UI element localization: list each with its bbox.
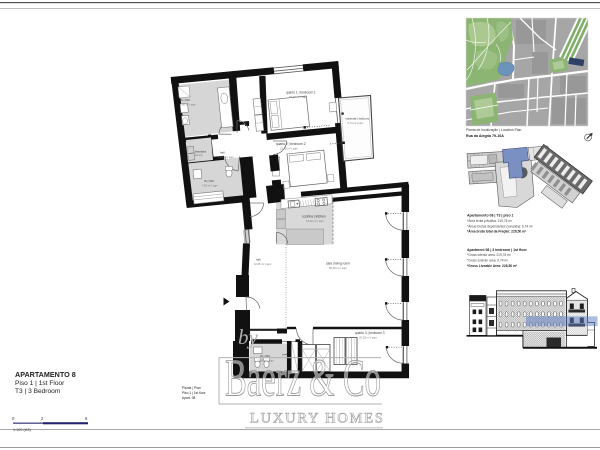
svg-text:Planta | Plan: Planta | Plan [182, 386, 201, 390]
svg-text:*Área bruta privativa: 219,76: *Área bruta privativa: 219,76 m² [467, 219, 512, 223]
svg-text:Apart. 08: Apart. 08 [182, 396, 196, 400]
svg-text:10,35 m² | sqm: 10,35 m² | sqm [254, 262, 271, 266]
svg-text:4,87 m² | sqm: 4,87 m² | sqm [218, 155, 234, 159]
svg-text:varanda | balcony: varanda | balcony [346, 117, 370, 121]
svg-text:Piso 1 | 1st Floor: Piso 1 | 1st Floor [15, 380, 65, 387]
svg-text:6,74 m² | sqm: 6,74 m² | sqm [348, 121, 364, 125]
svg-text:cozinha | kitchen: cozinha | kitchen [302, 215, 326, 219]
svg-text:1:100 (A3): 1:100 (A3) [13, 428, 31, 432]
svg-text:*Gross exterior area: 6,74 m²: *Gross exterior area: 6,74 m² [467, 259, 508, 263]
svg-text:7,60 m² | sqm: 7,60 m² | sqm [180, 103, 196, 107]
svg-text:quarto 2 | bedroom 2: quarto 2 | bedroom 2 [276, 142, 306, 146]
svg-text:7,65 m² | sqm: 7,65 m² | sqm [202, 184, 218, 188]
svg-text:Apartamento 08 | T3 | piso 1: Apartamento 08 | T3 | piso 1 [467, 214, 514, 218]
svg-text:Piso 1 | 1st floor: Piso 1 | 1st floor [182, 391, 206, 395]
svg-text:quarto 1 | bedroom 1: quarto 1 | bedroom 1 [286, 91, 316, 95]
svg-text:*Gross Liveable Area: 226,50 m: *Gross Liveable Area: 226,50 m² [467, 264, 518, 268]
svg-text:*Gross interior area: 219,76 m: *Gross interior area: 219,76 m² [467, 253, 511, 257]
svg-text:IS | WC: IS | WC [180, 98, 191, 102]
svg-text:20,25 m² | sqm: 20,25 m² | sqm [359, 336, 378, 340]
svg-text:Apartment 08 | 3 bedroom | 1st: Apartment 08 | 3 bedroom | 1st floor [467, 248, 528, 252]
svg-text:IS | WC: IS | WC [204, 179, 215, 183]
svg-text:Baerz & Co: Baerz & Co [225, 349, 381, 407]
svg-text:hall: hall [220, 151, 225, 155]
svg-text:APARTAMENTO 8: APARTAMENTO 8 [15, 370, 76, 379]
svg-text:by: by [238, 325, 259, 349]
svg-text:16,90 m² | sqm: 16,90 m² | sqm [306, 219, 325, 223]
svg-text:Rua da Alegria 79-10A: Rua da Alegria 79-10A [466, 134, 504, 138]
svg-text:15,48 m² | sqm: 15,48 m² | sqm [280, 147, 299, 151]
svg-text:hall: hall [256, 258, 261, 262]
svg-text:20,37 m² | sqm: 20,37 m² | sqm [289, 95, 308, 99]
svg-text:55,95 m² | sqm: 55,95 m² | sqm [329, 266, 348, 270]
svg-text:sala | living room: sala | living room [326, 262, 350, 266]
svg-text:*Áreas brutas dependentes (var: *Áreas brutas dependentes (varanda): 6,7… [467, 224, 533, 228]
svg-text:laundry: laundry [195, 154, 204, 157]
svg-text:*Área bruta total da Fração: 2: *Área bruta total da Fração: 226,50 m² [467, 229, 527, 234]
svg-text:LUXURY HOMES: LUXURY HOMES [250, 411, 387, 427]
svg-text:quarto 3 | bedroom 3: quarto 3 | bedroom 3 [355, 331, 385, 335]
svg-text:T3 | 3 Bedroom: T3 | 3 Bedroom [15, 388, 61, 395]
svg-text:Planta de localização | Locati: Planta de localização | Location Plan [466, 128, 521, 132]
